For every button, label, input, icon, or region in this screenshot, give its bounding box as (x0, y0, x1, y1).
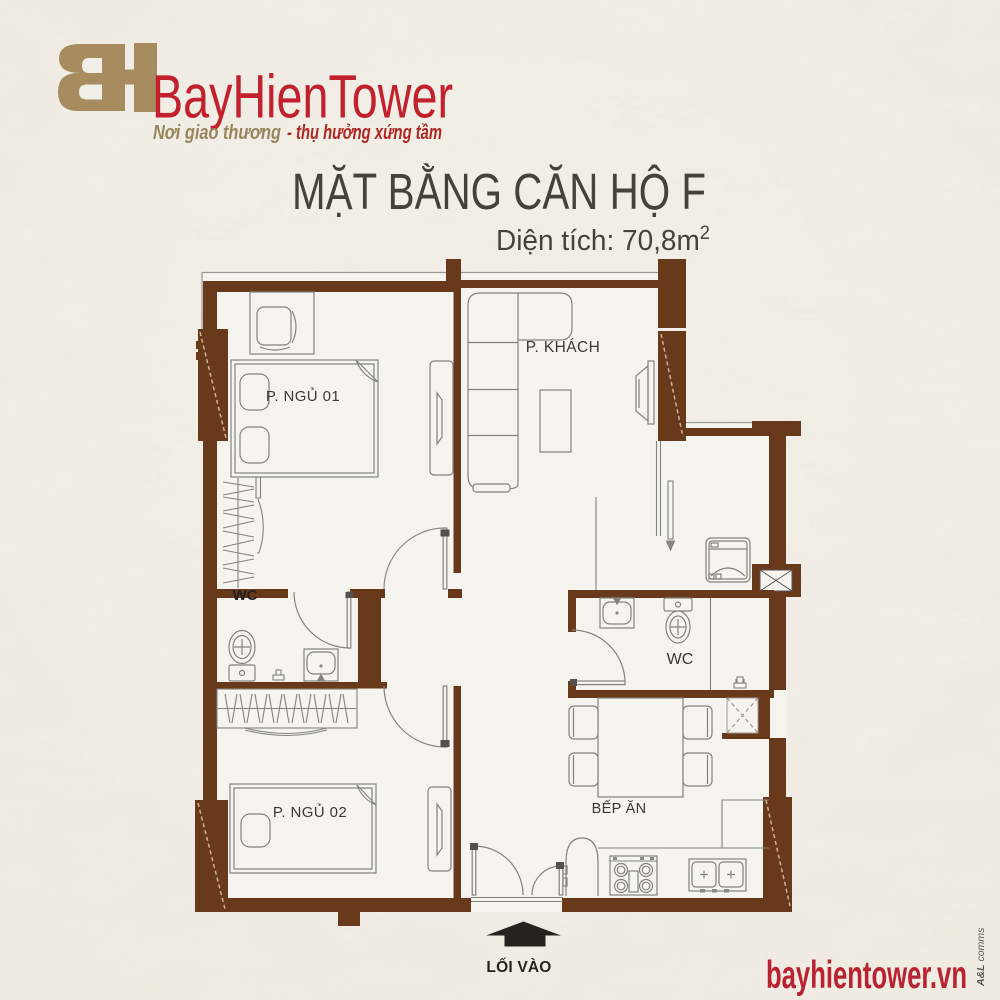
svg-text:BẾP ĂN: BẾP ĂN (592, 800, 647, 817)
svg-text:bayhientower.vn: bayhientower.vn (766, 954, 967, 997)
svg-text:MẶT BẰNG CĂN HỘ F: MẶT BẰNG CĂN HỘ F (292, 162, 706, 220)
svg-text:LỐI VÀO: LỐI VÀO (486, 958, 551, 976)
svg-text:- thụ hưởng xứng tầm: - thụ hưởng xứng tầm (287, 121, 442, 144)
svg-text:Diện tích: 70,8m2: Diện tích: 70,8m2 (496, 223, 710, 257)
svg-text:A&L comms: A&L comms (975, 927, 987, 987)
svg-text:P. NGỦ 02: P. NGỦ 02 (273, 803, 347, 821)
svg-text:WC: WC (233, 587, 258, 604)
svg-text:WC: WC (667, 651, 694, 668)
svg-text:P. KHÁCH: P. KHÁCH (526, 339, 600, 356)
svg-text:Nơi giao thương: Nơi giao thương (153, 121, 281, 144)
svg-text:P. NGỦ 01: P. NGỦ 01 (266, 387, 340, 405)
